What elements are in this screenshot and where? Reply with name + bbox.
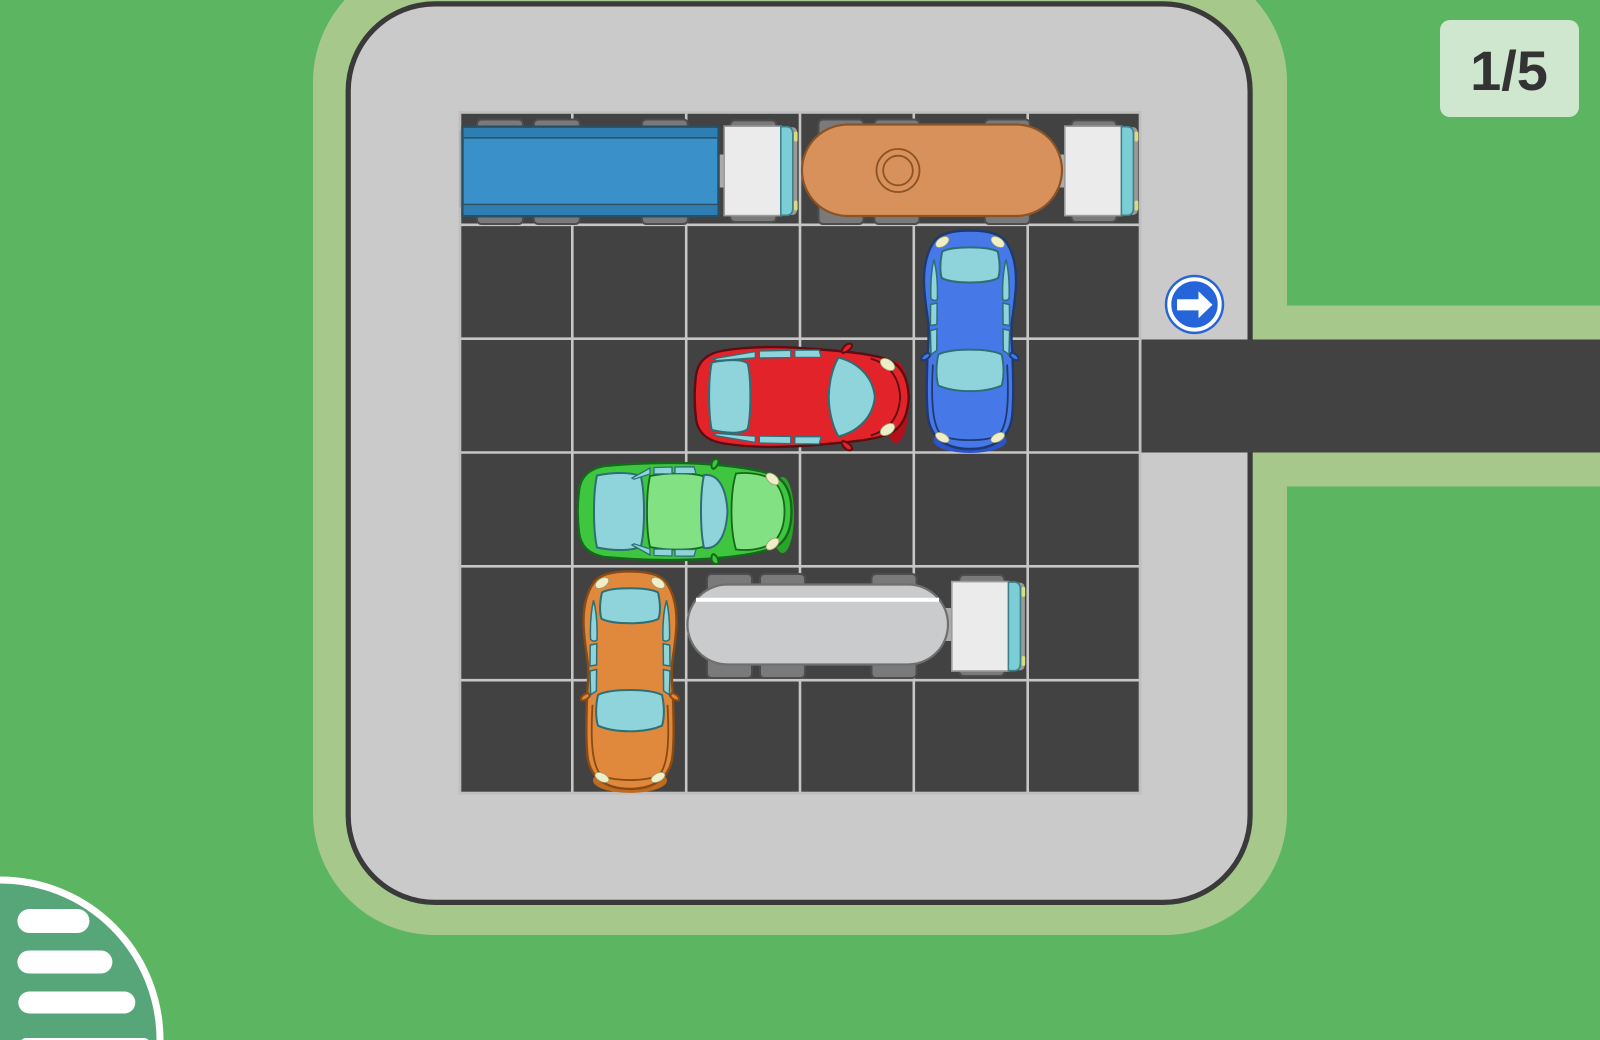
svg-text:1/5: 1/5 <box>1470 39 1548 102</box>
